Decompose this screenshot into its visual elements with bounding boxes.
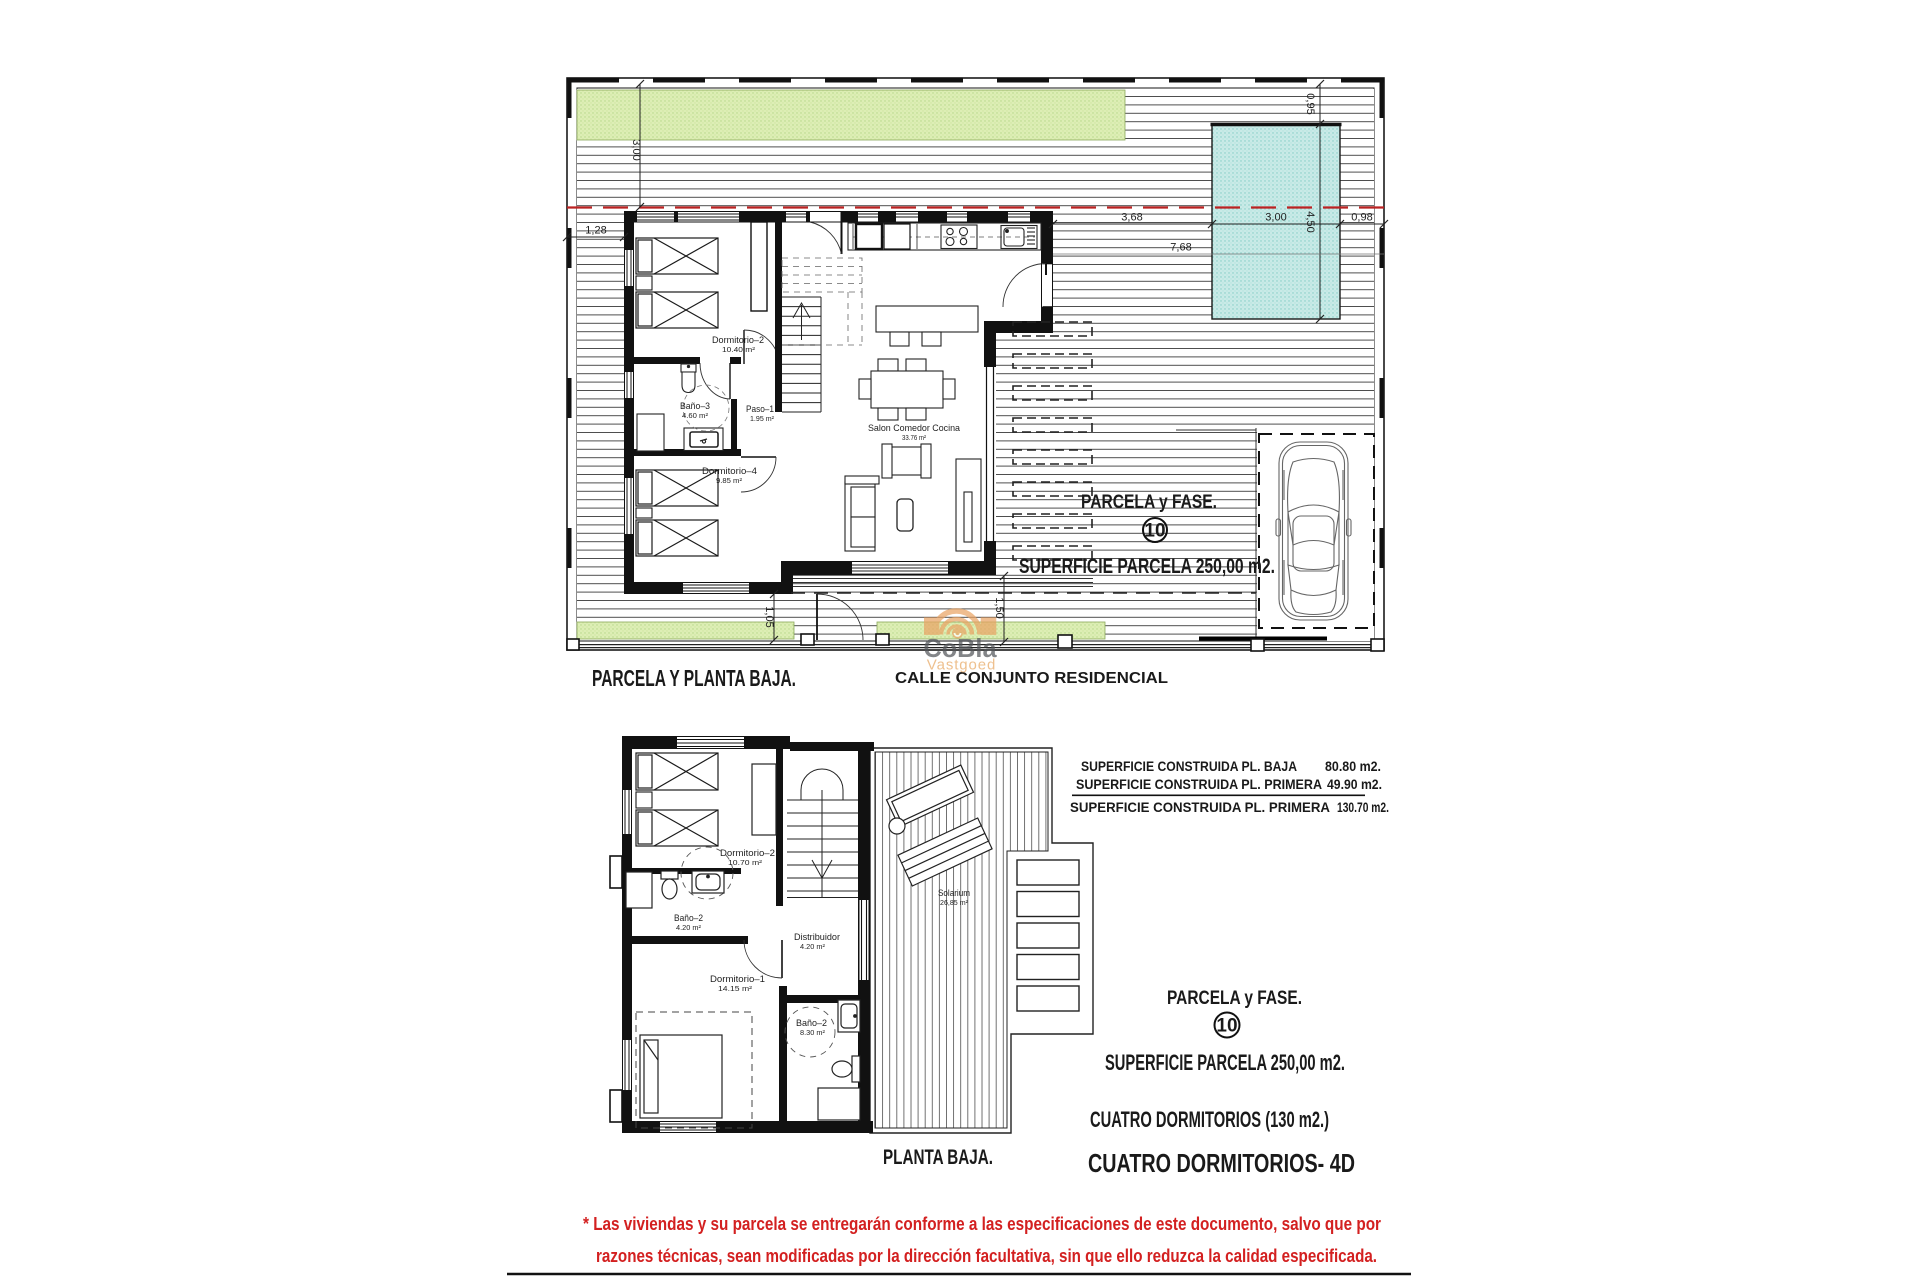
svg-text:Vastgoed: Vastgoed [927,657,996,674]
svg-text:8.30 m²: 8.30 m² [800,1030,826,1037]
svg-text:10: 10 [1216,1016,1237,1037]
svg-text:SUPERFICIE CONSTRUIDA PL. PRIM: SUPERFICIE CONSTRUIDA PL. PRIMERA [1070,799,1330,815]
svg-text:CUATRO DORMITORIOS (130 m2.): CUATRO DORMITORIOS (130 m2.) [1090,1107,1329,1132]
svg-text:1.95 m²: 1.95 m² [750,416,775,423]
svg-text:0,95: 0,95 [1304,93,1316,114]
svg-text:Baño–3: Baño–3 [680,401,710,412]
svg-text:PARCELA y FASE.: PARCELA y FASE. [1167,988,1302,1009]
svg-text:SUPERFICIE CONSTRUIDA PL. PRIM: SUPERFICIE CONSTRUIDA PL. PRIMERA [1076,776,1322,792]
svg-text:4.60 m²: 4.60 m² [682,413,709,420]
svg-text:9.85 m²: 9.85 m² [716,478,743,485]
svg-text:3,00: 3,00 [1265,212,1286,224]
svg-text:4.20 m²: 4.20 m² [800,944,826,951]
svg-text:3,00: 3,00 [630,139,642,160]
svg-text:130.70 m2.: 130.70 m2. [1337,799,1389,815]
svg-text:Baño–2: Baño–2 [796,1018,827,1029]
svg-text:* Las viviendas y su parcela s: * Las viviendas y su parcela se entregar… [583,1213,1381,1234]
svg-text:10.70 m²: 10.70 m² [728,860,763,867]
svg-text:1,28: 1,28 [585,225,606,237]
svg-text:PARCELA Y PLANTA BAJA.: PARCELA Y PLANTA BAJA. [592,665,796,691]
svg-text:Distribuidor: Distribuidor [794,932,840,943]
svg-text:Solarium: Solarium [938,888,970,899]
svg-text:CUATRO DORMITORIOS- 4D: CUATRO DORMITORIOS- 4D [1088,1148,1355,1178]
svg-text:SUPERFICIE PARCELA 250,00 m2.: SUPERFICIE PARCELA 250,00 m2. [1105,1050,1345,1075]
svg-text:49.90 m2.: 49.90 m2. [1327,776,1382,792]
svg-text:3,68: 3,68 [1121,212,1142,224]
svg-text:Dormitorio–2: Dormitorio–2 [712,335,764,346]
svg-text:Baño–2: Baño–2 [674,913,703,924]
svg-text:0,98: 0,98 [1351,212,1372,224]
svg-text:4.20 m²: 4.20 m² [676,925,702,932]
svg-text:Dormitorio–1: Dormitorio–1 [710,974,765,985]
svg-text:14.15 m²: 14.15 m² [718,986,753,993]
svg-text:SUPERFICIE CONSTRUIDA PL. BAJA: SUPERFICIE CONSTRUIDA PL. BAJA [1081,758,1297,774]
svg-text:Paso–1: Paso–1 [746,404,774,415]
svg-text:SUPERFICIE PARCELA 250,00 m2.: SUPERFICIE PARCELA 250,00 m2. [1019,555,1275,578]
svg-text:Dormitorio–4: Dormitorio–4 [702,466,757,477]
svg-text:razones técnicas, sean modific: razones técnicas, sean modificadas por l… [596,1245,1377,1266]
svg-text:26,85 m²: 26,85 m² [940,900,969,907]
svg-text:33.76 m²: 33.76 m² [902,435,927,442]
svg-text:10.40 m²: 10.40 m² [722,347,756,354]
svg-text:1,05: 1,05 [763,606,775,627]
svg-text:PLANTA BAJA.: PLANTA BAJA. [883,1145,993,1169]
svg-text:PARCELA y FASE.: PARCELA y FASE. [1081,492,1217,513]
svg-text:4,50: 4,50 [1304,211,1316,232]
svg-text:80.80 m2.: 80.80 m2. [1325,758,1381,774]
svg-text:10: 10 [1144,521,1165,542]
svg-text:1,50: 1,50 [993,597,1005,618]
svg-text:Salon Comedor Cocina: Salon Comedor Cocina [868,423,961,434]
svg-text:7,68: 7,68 [1170,242,1191,254]
